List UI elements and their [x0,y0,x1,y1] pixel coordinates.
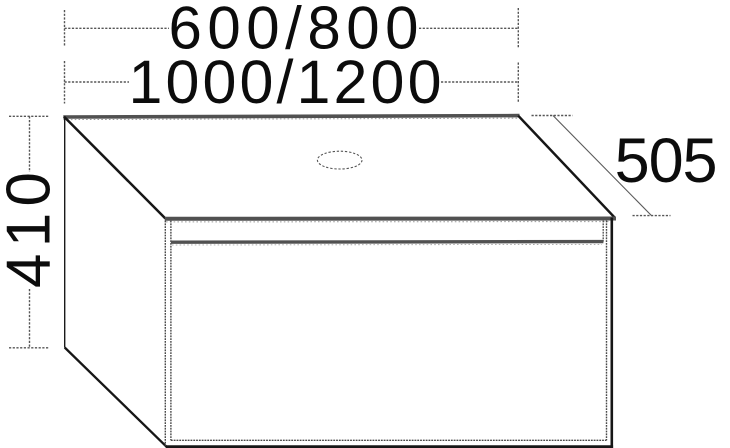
svg-text:1000/1200: 1000/1200 [129,48,442,116]
svg-text:505: 505 [615,126,718,196]
svg-text:410: 410 [0,172,63,288]
